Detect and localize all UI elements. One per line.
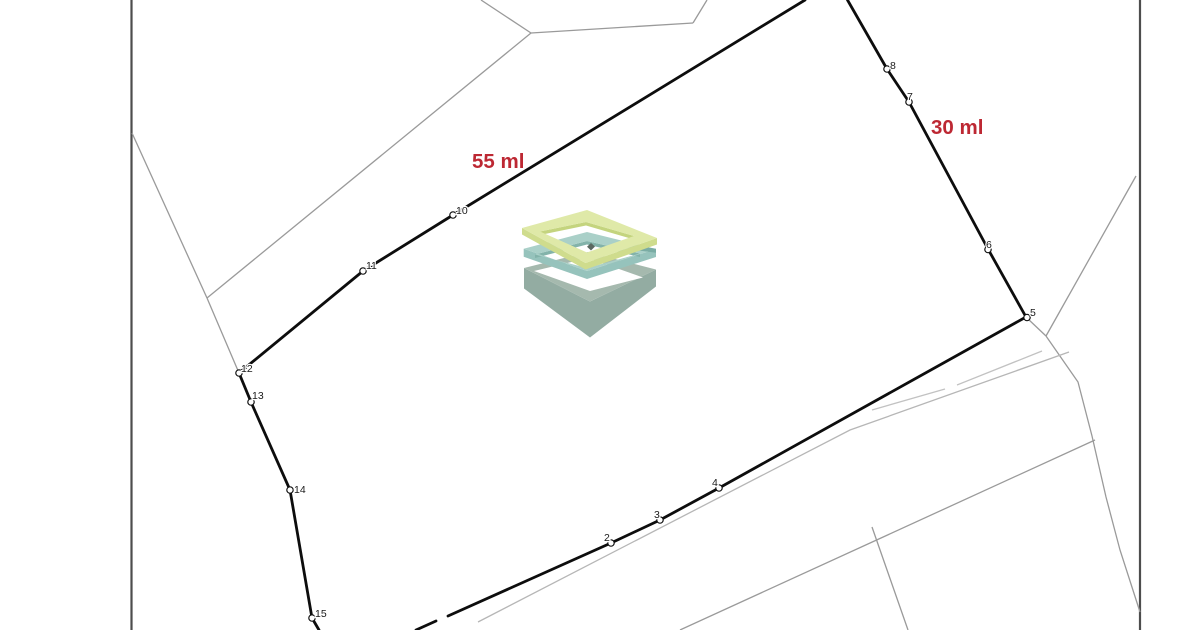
svg-text:8: 8 — [890, 60, 896, 72]
svg-text:2: 2 — [604, 532, 610, 544]
svg-text:6: 6 — [986, 239, 992, 251]
svg-text:10: 10 — [456, 205, 468, 217]
svg-text:55 ml: 55 ml — [472, 150, 524, 173]
svg-text:3: 3 — [654, 509, 660, 521]
svg-text:30 ml: 30 ml — [931, 116, 983, 139]
svg-text:7: 7 — [907, 91, 913, 103]
svg-text:14: 14 — [294, 484, 306, 496]
svg-text:5: 5 — [1030, 307, 1036, 319]
svg-text:13: 13 — [252, 390, 264, 402]
svg-text:12: 12 — [241, 363, 253, 375]
svg-text:15: 15 — [315, 608, 327, 620]
svg-text:11: 11 — [366, 260, 377, 272]
svg-text:4: 4 — [712, 477, 718, 489]
